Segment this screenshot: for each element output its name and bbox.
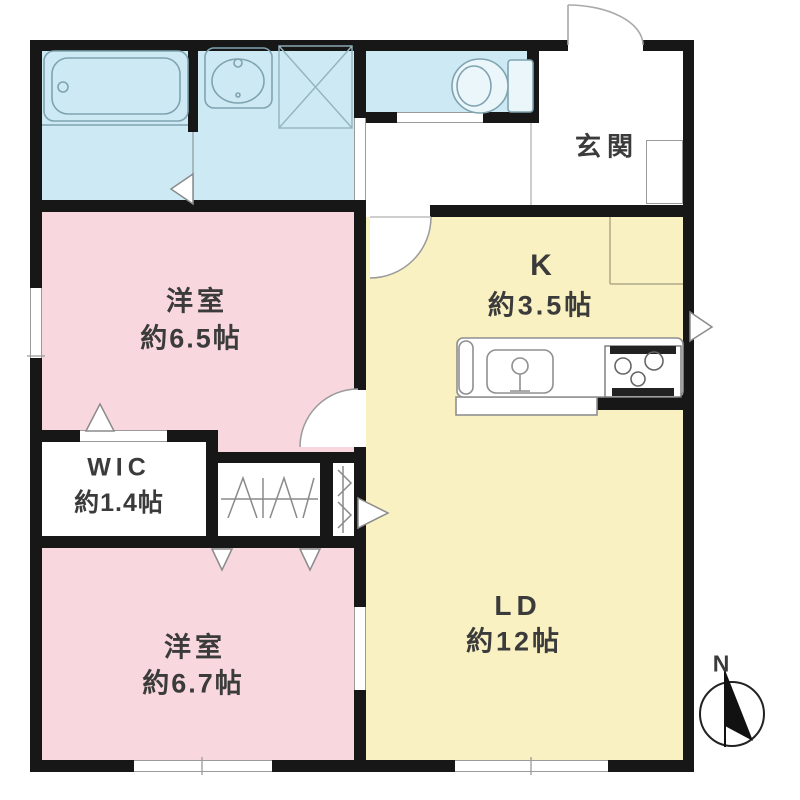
ld-label: LD [494,590,541,622]
ld-area-label: 約12帖 [466,620,562,659]
closet-door-marker-1 [212,549,232,570]
bath-door [171,132,193,204]
entrance-door-icon [568,5,643,45]
closet-ld-door-marker [358,498,388,528]
bedroom65-area-label: 約6.5帖 [140,317,242,356]
kitchen-label: K [530,249,552,283]
bedroom65-door-icon [300,389,358,447]
wic-label: WIC [87,454,151,483]
bathtub-icon [42,51,188,125]
bedroom65-label: 洋室 [166,280,228,319]
fridge-space-lines [610,217,683,284]
north-arrow-icon [700,670,764,747]
closet-accordion-icon [221,478,318,518]
toilet-icon [452,59,533,113]
entrance-label: 玄関 [575,127,639,164]
wic-door-marker [86,404,114,431]
closet2-accordion-icon [338,466,351,533]
bedroom67-label: 洋室 [164,626,226,665]
vent-marker [690,312,712,341]
kitchen-door-icon [370,217,431,278]
washer-pan-icon [279,46,352,128]
washbasin-icon [205,48,272,108]
wic-area-label: 約1.4帖 [74,483,164,519]
floor-plan: 玄関 K 約3.5帖 洋室 約6.5帖 WIC 約1.4帖 洋室 約6.7帖 L… [0,0,800,800]
north-label: N [713,651,730,678]
kitchen-area-label: 約3.5帖 [488,284,595,323]
stove-icon [605,346,681,397]
closet-door-marker-2 [300,549,320,570]
bedroom67-area-label: 約6.7帖 [142,662,244,701]
